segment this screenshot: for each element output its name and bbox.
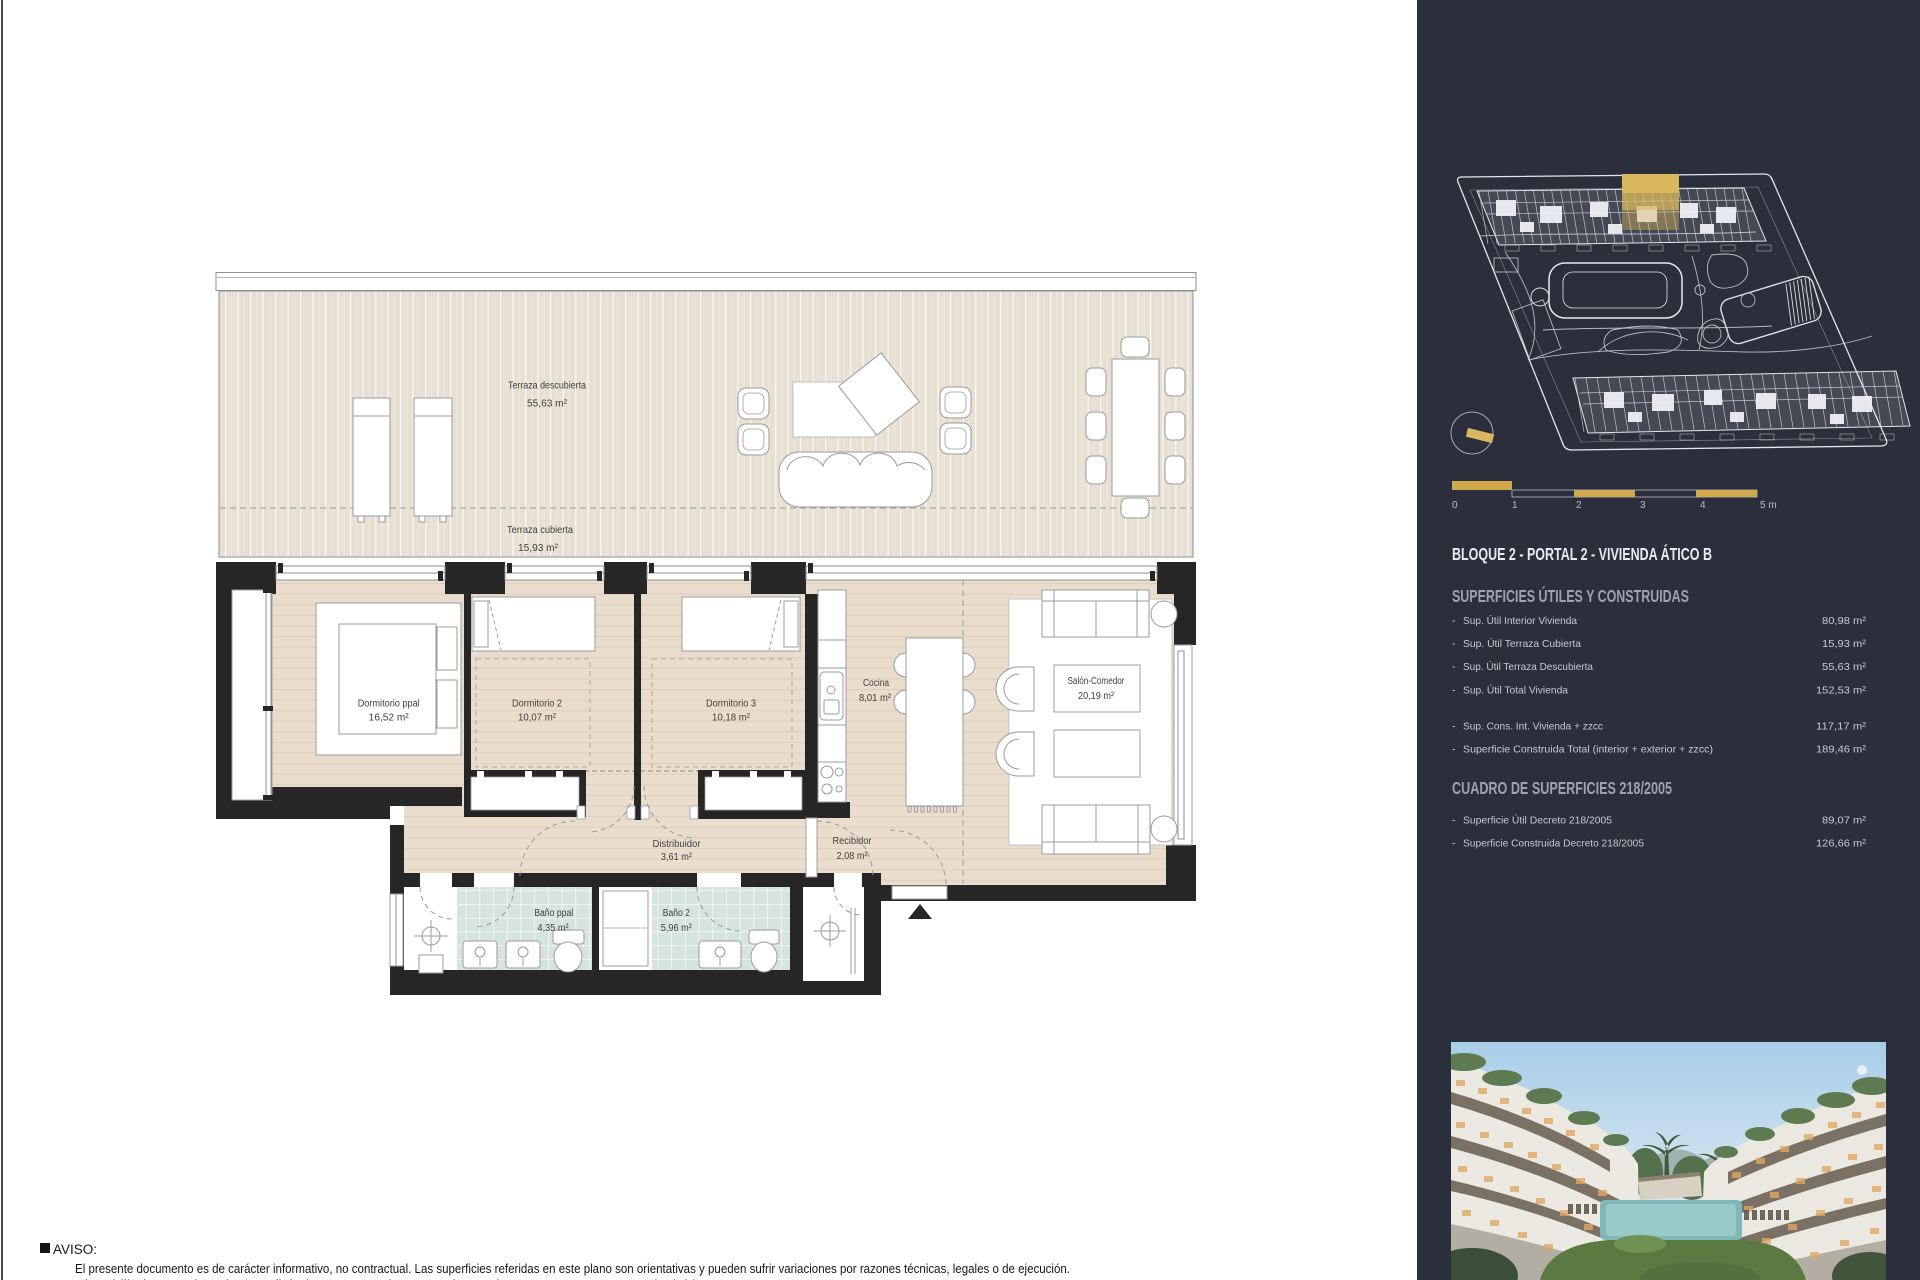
svg-text:10,07 m²: 10,07 m² bbox=[518, 713, 557, 724]
svg-text:-: - bbox=[1452, 744, 1456, 756]
svg-text:Sup. Útil Total Vivienda: Sup. Útil Total Vivienda bbox=[1463, 684, 1568, 697]
svg-text:0: 0 bbox=[1452, 500, 1458, 511]
svg-text:189,46 m²: 189,46 m² bbox=[1816, 744, 1867, 756]
svg-text:80,98 m²: 80,98 m² bbox=[1822, 615, 1867, 627]
svg-text:Sup. Útil Terraza Descubierta: Sup. Útil Terraza Descubierta bbox=[1463, 660, 1593, 673]
svg-text:2,08 m²: 2,08 m² bbox=[837, 851, 869, 862]
svg-text:CUADRO DE SUPERFICIES 218/2005: CUADRO DE SUPERFICIES 218/2005 bbox=[1452, 778, 1672, 798]
svg-text:4: 4 bbox=[1700, 500, 1706, 511]
svg-text:-: - bbox=[1452, 838, 1456, 850]
svg-text:Distribuidor: Distribuidor bbox=[653, 839, 702, 850]
svg-text:3,61 m²: 3,61 m² bbox=[661, 852, 693, 863]
svg-text:5 m: 5 m bbox=[1760, 500, 1777, 511]
svg-text:-: - bbox=[1452, 615, 1456, 627]
svg-text:4,35 m²: 4,35 m² bbox=[538, 923, 570, 934]
svg-text:16,52 m²: 16,52 m² bbox=[369, 713, 410, 724]
svg-text:152,53 m²: 152,53 m² bbox=[1816, 685, 1867, 697]
svg-text:-: - bbox=[1452, 721, 1456, 733]
svg-text:Sup. Útil Terraza Cubierta: Sup. Útil Terraza Cubierta bbox=[1463, 637, 1581, 650]
svg-text:2: 2 bbox=[1576, 500, 1582, 511]
svg-text:5,96 m²: 5,96 m² bbox=[661, 923, 693, 934]
svg-text:Superficie Útil Decreto 218/20: Superficie Útil Decreto 218/2005 bbox=[1463, 814, 1612, 827]
svg-text:Superficie Construida Decreto: Superficie Construida Decreto 218/2005 bbox=[1463, 838, 1644, 850]
svg-text:AVISO:: AVISO: bbox=[53, 1242, 97, 1257]
svg-text:15,93 m²: 15,93 m² bbox=[518, 543, 559, 554]
svg-text:117,17 m²: 117,17 m² bbox=[1816, 721, 1867, 733]
svg-text:Sup. Cons. Int. Vivienda + zzc: Sup. Cons. Int. Vivienda + zzcc bbox=[1463, 721, 1603, 733]
svg-text:BLOQUE 2 - PORTAL 2 - VIVIENDA: BLOQUE 2 - PORTAL 2 - VIVIENDA ÁTICO B bbox=[1452, 543, 1712, 564]
svg-text:Sup. Útil Interior Vivienda: Sup. Útil Interior Vivienda bbox=[1463, 614, 1577, 627]
svg-text:15,93 m²: 15,93 m² bbox=[1822, 638, 1867, 650]
svg-text:3: 3 bbox=[1640, 500, 1646, 511]
svg-text:El presente documento es de ca: El presente documento es de carácter inf… bbox=[75, 1261, 1070, 1276]
svg-text:10,18 m²: 10,18 m² bbox=[712, 713, 751, 724]
svg-text:Salón-Comedor: Salón-Comedor bbox=[1068, 676, 1126, 687]
svg-text:55,63 m²: 55,63 m² bbox=[527, 399, 568, 410]
svg-text:Cocina: Cocina bbox=[863, 678, 889, 689]
svg-text:Terraza descubierta: Terraza descubierta bbox=[508, 381, 586, 392]
svg-text:Baño ppal: Baño ppal bbox=[534, 908, 573, 919]
svg-text:89,07 m²: 89,07 m² bbox=[1822, 815, 1867, 827]
svg-text:8,01 m²: 8,01 m² bbox=[859, 693, 892, 704]
svg-text:Dormitorio ppal: Dormitorio ppal bbox=[358, 699, 420, 710]
svg-text:Dormitorio 3: Dormitorio 3 bbox=[706, 699, 756, 710]
svg-text:126,66 m²: 126,66 m² bbox=[1816, 838, 1867, 850]
svg-text:55,63 m²: 55,63 m² bbox=[1822, 661, 1867, 673]
svg-text:Dormitorio 2: Dormitorio 2 bbox=[512, 699, 562, 710]
svg-text:Recibidor: Recibidor bbox=[833, 836, 873, 847]
svg-text:-: - bbox=[1452, 638, 1456, 650]
svg-text:-: - bbox=[1452, 661, 1456, 673]
svg-text:Terraza cubierta: Terraza cubierta bbox=[507, 525, 573, 536]
svg-text:SUPERFICIES ÚTILES Y CONSTRUID: SUPERFICIES ÚTILES Y CONSTRUIDAS bbox=[1452, 585, 1689, 606]
svg-text:1: 1 bbox=[1512, 500, 1518, 511]
svg-text:Baño 2: Baño 2 bbox=[663, 908, 690, 919]
svg-text:-: - bbox=[1452, 815, 1456, 827]
svg-text:Superficie Construida Total (i: Superficie Construida Total (interior + … bbox=[1463, 744, 1713, 756]
svg-text:-: - bbox=[1452, 685, 1456, 697]
svg-text:20,19 m²: 20,19 m² bbox=[1078, 691, 1115, 702]
